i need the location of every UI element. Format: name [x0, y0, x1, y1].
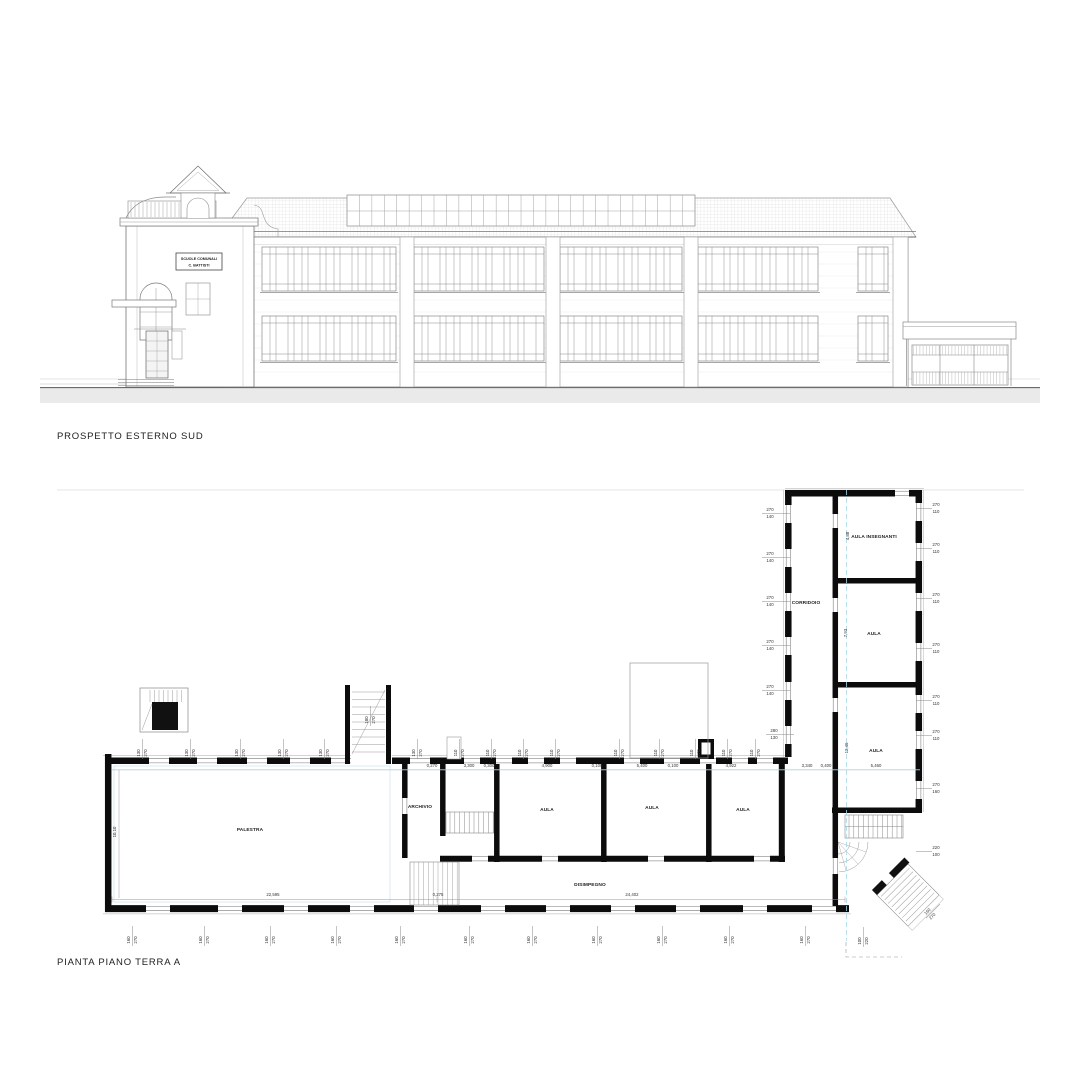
- vertical-dim: 7,93: [843, 628, 848, 637]
- dim-text: 270: [143, 749, 148, 757]
- dim-text: 180: [364, 716, 369, 724]
- building-sign-line2: C. BATTISTI: [188, 264, 209, 268]
- window-gap: [560, 756, 576, 765]
- dashed-bracket: [846, 942, 902, 957]
- dim-text: 160: [198, 936, 203, 944]
- window-gap: [247, 756, 267, 765]
- window-gap: [676, 904, 700, 913]
- window-gap: [784, 682, 793, 700]
- dim-text: 110: [749, 749, 754, 756]
- window-gap: [284, 904, 308, 913]
- window-gap: [914, 731, 923, 749]
- elevation-caption: PROSPETTO ESTERNO SUD: [57, 431, 203, 442]
- dim-pair: 110270: [613, 739, 625, 759]
- room-label: AULA: [736, 807, 750, 813]
- dim-pair: 160270: [656, 926, 668, 946]
- dim-text: 270: [533, 936, 538, 944]
- dim-pair: 160270: [526, 926, 538, 946]
- dim-text: 160: [463, 936, 468, 944]
- arch-niche: [187, 198, 209, 218]
- window-gap: [611, 904, 635, 913]
- canopy-outline: [630, 663, 708, 758]
- dim-text: 270: [766, 507, 774, 512]
- pilaster: [400, 237, 414, 387]
- drawing-sheet: PALESTRAARCHIVIOAULAAULAAULADISIMPEGNOCO…: [0, 0, 1081, 1081]
- dim-text: 100: [857, 937, 862, 945]
- room-label: AULA: [867, 631, 881, 637]
- dim-text: 270: [241, 749, 246, 757]
- window-gap: [546, 904, 570, 913]
- window-gap: [832, 514, 840, 528]
- dim-text: 110: [933, 649, 940, 654]
- architectural-drawing: PALESTRAARCHIVIOAULAAULAAULADISIMPEGNOCO…: [0, 0, 1081, 1081]
- spiral-stair: [838, 842, 868, 872]
- width-dim: 3,300: [464, 763, 475, 768]
- dim-text: 270: [418, 749, 423, 757]
- dim-text: 110: [933, 701, 940, 706]
- dim-text: 270: [756, 749, 761, 757]
- dim-pair: 110270: [721, 739, 733, 759]
- dim-text: 270: [730, 936, 735, 944]
- dim-text: 110: [517, 749, 522, 756]
- window-band: [560, 247, 682, 291]
- dim-text: 160: [723, 936, 728, 944]
- bottom-dim: 0,275: [433, 892, 444, 897]
- window-gap: [914, 695, 923, 713]
- window-gap: [290, 756, 310, 765]
- dim-text: 110: [933, 736, 940, 741]
- window-gap: [914, 593, 923, 611]
- dim-text: 270: [556, 749, 561, 757]
- room-label: AULA: [869, 748, 883, 754]
- dim-pair: 110270: [517, 739, 529, 759]
- dim-text: 270: [401, 936, 406, 944]
- palestra-inner-outline: [114, 766, 390, 902]
- dim-text: 160: [526, 936, 531, 944]
- pilaster: [684, 237, 698, 387]
- window-gap: [895, 489, 909, 498]
- dim-pair: 110270: [485, 739, 497, 759]
- dim-text: 270: [492, 749, 497, 757]
- dim-text: 270: [932, 592, 940, 597]
- dim-text: 270: [660, 749, 665, 757]
- dim-pair: 160270: [264, 926, 276, 946]
- drawing-shape: [702, 743, 711, 755]
- width-dim: 0,100: [592, 763, 603, 768]
- entrance-stair-diagonal: [872, 858, 945, 931]
- dim-text: 160: [656, 936, 661, 944]
- balcony-slab: [112, 300, 176, 307]
- window-gap: [784, 637, 793, 655]
- window-gap: [149, 756, 169, 765]
- dim-text: 110: [453, 749, 458, 756]
- dim-text: 270: [337, 936, 342, 944]
- window-gap: [914, 643, 923, 661]
- dim-pair: 160270: [330, 926, 342, 946]
- width-dim: 0,100: [668, 763, 679, 768]
- window-gap: [472, 855, 488, 863]
- dim-pair: 130270: [234, 739, 246, 759]
- dim-text: 220: [932, 845, 940, 850]
- vertical-dim: 12,46: [844, 742, 849, 753]
- window-gap: [197, 756, 217, 765]
- dim-text: 160: [591, 936, 596, 944]
- dim-pair: 110270: [653, 739, 665, 759]
- ground-strip: [40, 388, 1040, 403]
- window-gap: [914, 503, 923, 521]
- dim-text: 140: [766, 514, 774, 519]
- dim-text: 270: [460, 749, 465, 757]
- dim-text: 270: [766, 684, 774, 689]
- dim-text: 270: [766, 551, 774, 556]
- dim-text: 270: [932, 502, 940, 507]
- width-dim: 3,340: [802, 763, 813, 768]
- dim-pair: 160270: [126, 926, 138, 946]
- dim-text: 130: [770, 735, 778, 740]
- window-gap: [784, 726, 793, 744]
- dim-text: 270: [932, 642, 940, 647]
- dim-text: 270: [470, 936, 475, 944]
- width-dim: 0,300: [484, 763, 495, 768]
- window-gap: [743, 904, 767, 913]
- window-gap: [832, 598, 840, 612]
- dim-text: 270: [133, 936, 138, 944]
- dim-text: 270: [620, 749, 625, 757]
- dim-pair: 160270: [799, 926, 811, 946]
- room-label: CORRIDOIO: [792, 600, 821, 606]
- dim-text: 270: [524, 749, 529, 757]
- dim-text: 140: [766, 646, 774, 651]
- room-label: AULA: [645, 805, 659, 811]
- window-gap: [832, 858, 840, 874]
- dim-text: 110: [721, 749, 726, 756]
- dim-pair: 110270: [749, 739, 761, 759]
- dim-text: 110: [549, 749, 554, 756]
- pilaster: [546, 237, 560, 387]
- dim-text: 160: [264, 936, 269, 944]
- dim-text: 270: [663, 936, 668, 944]
- dim-text: 110: [933, 599, 940, 604]
- room-label: PALESTRA: [237, 827, 264, 833]
- dim-text: 270: [932, 694, 940, 699]
- dim-text: 270: [932, 542, 940, 547]
- width-dim: 5,460: [871, 763, 882, 768]
- dim-text: 110: [653, 749, 658, 756]
- dim-pair: 100220: [857, 927, 869, 947]
- window-gap: [414, 904, 438, 913]
- window-gap: [218, 904, 242, 913]
- dim-text: 130: [136, 749, 141, 757]
- room-label: AULA: [540, 807, 554, 813]
- dim-text: 130: [184, 749, 189, 757]
- dim-text: 270: [325, 749, 330, 757]
- window-band: [698, 247, 818, 291]
- dim-text: 130: [234, 749, 239, 757]
- window-gap: [812, 904, 836, 913]
- window-gap: [914, 781, 923, 799]
- dim-text: 270: [371, 716, 376, 724]
- bottom-dim: 24,402: [625, 892, 639, 897]
- dim-text: 270: [284, 749, 289, 757]
- stair: [446, 812, 494, 833]
- dim-pair: 130270: [318, 739, 330, 759]
- dim-text: 110: [485, 749, 490, 756]
- window-band: [858, 247, 888, 291]
- annex-roof: [903, 322, 1016, 339]
- elevation-drawing: [40, 166, 1040, 403]
- room-label: DISIMPEGNO: [574, 882, 606, 888]
- dim-text: 130: [277, 749, 282, 757]
- dim-text: 270: [932, 782, 940, 787]
- width-dim: 0,400: [821, 763, 832, 768]
- dim-text: 130: [411, 749, 416, 757]
- dim-text: 160: [932, 789, 940, 794]
- dim-pair: 160270: [723, 926, 735, 946]
- width-dim: 4,922: [726, 763, 737, 768]
- building-sign-line1: SCUOLE COMUNALI: [181, 257, 217, 261]
- vertical-dim: 10,10: [112, 826, 117, 837]
- dim-text: 270: [271, 936, 276, 944]
- room-label: ARCHIVIO: [408, 804, 432, 810]
- dim-text: 270: [806, 936, 811, 944]
- dim-text: 140: [766, 691, 774, 696]
- dim-text: 130: [318, 749, 323, 757]
- dim-text: 160: [799, 936, 804, 944]
- dim-pair: 130270: [411, 739, 423, 759]
- dim-text: 110: [933, 549, 940, 554]
- window-gap: [481, 904, 505, 913]
- dim-text: 270: [766, 639, 774, 644]
- bottom-dim: 22,595: [266, 892, 280, 897]
- dim-text: 270: [191, 749, 196, 757]
- dim-text: 160: [330, 936, 335, 944]
- stair: [410, 862, 459, 905]
- drawing-shape: [838, 842, 866, 852]
- window-gap: [350, 904, 374, 913]
- dim-pair: 130270: [136, 739, 148, 759]
- dim-pair: 160270: [198, 926, 210, 946]
- window-gap: [784, 505, 793, 523]
- dim-text: 270: [766, 595, 774, 600]
- window-gap: [648, 855, 664, 863]
- dim-text: 160: [126, 936, 131, 944]
- window-gap: [146, 904, 170, 913]
- dim-pair: 180270: [364, 706, 376, 726]
- window-gap: [542, 855, 558, 863]
- window-band: [414, 247, 544, 291]
- dim-pair: 160270: [394, 926, 406, 946]
- dim-text: 270: [205, 936, 210, 944]
- dim-text: 220: [864, 937, 869, 945]
- window-gap: [757, 756, 773, 765]
- window-gap: [496, 756, 512, 765]
- width-dim: 5,400: [637, 763, 648, 768]
- plan-drawing: PALESTRAARCHIVIOAULAAULAAULADISIMPEGNOCO…: [57, 488, 1024, 957]
- dim-pair: 220100: [916, 845, 940, 857]
- dim-text: 110: [689, 749, 694, 756]
- window-gap: [832, 698, 840, 712]
- dim-text: 270: [728, 749, 733, 757]
- dim-pair: 110270: [549, 739, 561, 759]
- window-band: [262, 247, 396, 291]
- width-dim: 4,900: [542, 763, 553, 768]
- dim-text: 110: [613, 749, 618, 756]
- dim-text: 140: [766, 602, 774, 607]
- plan-caption: PIANTA PIANO TERRA A: [57, 957, 181, 968]
- window-gap: [914, 543, 923, 561]
- dim-pair: 130270: [277, 739, 289, 759]
- pilaster: [893, 237, 908, 387]
- dim-pair: 160270: [591, 926, 603, 946]
- dim-text: 100: [932, 852, 940, 857]
- dim-text: 270: [932, 729, 940, 734]
- vertical-dim: 4,88: [845, 531, 850, 540]
- side-light: [172, 331, 182, 359]
- dim-pair: 130270: [184, 739, 196, 759]
- dim-text: 110: [933, 509, 940, 514]
- dim-text: 270: [598, 936, 603, 944]
- dim-text: 280: [770, 728, 778, 733]
- window-gap: [784, 549, 793, 567]
- dim-text: 270: [696, 749, 701, 757]
- dim-pair: 160270: [463, 926, 475, 946]
- dim-text: 140: [766, 558, 774, 563]
- room-label: AULA INSEGNANTI: [851, 534, 897, 540]
- dim-text: 160: [394, 936, 399, 944]
- width-dim: 0,270: [427, 763, 438, 768]
- window-gap: [754, 855, 770, 863]
- lift-block: [152, 702, 178, 730]
